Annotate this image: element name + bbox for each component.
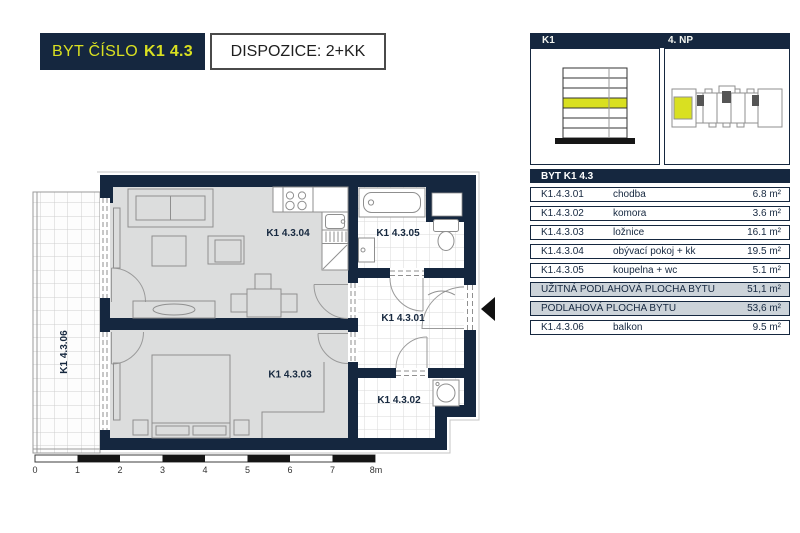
room-name: balkon bbox=[613, 322, 753, 333]
room-code: K1.4.3.01 bbox=[531, 189, 613, 200]
highlighted-unit bbox=[674, 97, 692, 119]
badge-prefix: BYT ČÍSLO bbox=[52, 43, 138, 61]
room-name: komora bbox=[613, 208, 753, 219]
floor-label: 4. NP bbox=[668, 35, 693, 46]
table-title: BYT K1 4.3 bbox=[541, 171, 593, 182]
scale-tick: 5 bbox=[245, 465, 250, 475]
scale-tick: 6 bbox=[287, 465, 292, 475]
building-elevation-cell bbox=[530, 48, 660, 165]
scale-tick: 4 bbox=[202, 465, 207, 475]
table-row: K1.4.3.05 koupelna + wc 5.1 m² bbox=[530, 263, 790, 278]
summary-area: 51,1 m² bbox=[747, 284, 789, 295]
room-code: K1.4.3.03 bbox=[531, 227, 613, 238]
shaft bbox=[432, 193, 462, 216]
room-label-storage: K1 4.3.02 bbox=[377, 395, 421, 406]
building-elevation-diagram bbox=[531, 49, 658, 163]
room-code: K1.4.3.02 bbox=[531, 208, 613, 219]
room-area: 3.6 m² bbox=[753, 208, 789, 219]
scale-bar: 0 1 2 3 4 5 6 7 8m bbox=[32, 455, 382, 475]
scale-tick: 2 bbox=[117, 465, 122, 475]
room-area: 9.5 m² bbox=[753, 322, 789, 333]
info-panel: K1 4. NP bbox=[530, 33, 790, 335]
floor-plan-minimap bbox=[665, 49, 788, 163]
layout-type-box: DISPOZICE: 2+KK bbox=[210, 33, 386, 70]
room-area: 19.5 m² bbox=[747, 246, 789, 257]
table-row: K1.4.3.04 obývací pokoj + kk 19.5 m² bbox=[530, 244, 790, 259]
room-label-hallway: K1 4.3.01 bbox=[381, 313, 425, 324]
entrance-arrow-icon bbox=[481, 297, 495, 321]
room-label-bathroom: K1 4.3.05 bbox=[376, 228, 420, 239]
scale-tick: 1 bbox=[75, 465, 80, 475]
room-area: 5.1 m² bbox=[753, 265, 789, 276]
summary-label: PODLAHOVÁ PLOCHA BYTU bbox=[531, 303, 747, 314]
floor-plan-minimap-cell bbox=[664, 48, 790, 165]
summary-row-floor-area: PODLAHOVÁ PLOCHA BYTU 53,6 m² bbox=[530, 301, 790, 316]
table-row: K1.4.3.03 ložnice 16.1 m² bbox=[530, 225, 790, 240]
scale-tick: 0 bbox=[32, 465, 37, 475]
room-label-living: K1 4.3.04 bbox=[266, 228, 310, 239]
table-title-bar: BYT K1 4.3 bbox=[530, 169, 790, 183]
highlighted-floor bbox=[563, 98, 627, 108]
summary-area: 53,6 m² bbox=[747, 303, 789, 314]
panel-header: K1 4. NP bbox=[530, 33, 790, 48]
summary-row-usable-area: UŽITNÁ PODLAHOVÁ PLOCHA BYTU 51,1 m² bbox=[530, 282, 790, 297]
table-row: K1.4.3.02 komora 3.6 m² bbox=[530, 206, 790, 221]
table-row: K1.4.3.01 chodba 6.8 m² bbox=[530, 187, 790, 202]
scale-tick: 8m bbox=[370, 465, 383, 475]
badge-unit-number: K1 4.3 bbox=[144, 43, 193, 61]
summary-label: UŽITNÁ PODLAHOVÁ PLOCHA BYTU bbox=[531, 284, 747, 295]
room-code: K1.4.3.04 bbox=[531, 246, 613, 257]
room-name: chodba bbox=[613, 189, 753, 200]
room-name: ložnice bbox=[613, 227, 747, 238]
balcony bbox=[33, 192, 100, 453]
room-name: koupelna + wc bbox=[613, 265, 753, 276]
apartment-number-badge: BYT ČÍSLO K1 4.3 bbox=[40, 33, 205, 70]
room-area: 6.8 m² bbox=[753, 189, 789, 200]
table-row-balcony: K1.4.3.06 balkon 9.5 m² bbox=[530, 320, 790, 335]
room-name: obývací pokoj + kk bbox=[613, 246, 747, 257]
layout-type-label: DISPOZICE: 2+KK bbox=[231, 43, 366, 61]
bedroom-floor bbox=[110, 330, 348, 438]
room-area: 16.1 m² bbox=[747, 227, 789, 238]
building-label: K1 bbox=[542, 35, 555, 46]
room-code: K1.4.3.05 bbox=[531, 265, 613, 276]
room-label-balcony: K1 4.3.06 bbox=[59, 330, 70, 374]
room-label-bedroom: K1 4.3.03 bbox=[268, 370, 312, 381]
scale-tick: 7 bbox=[330, 465, 335, 475]
room-code: K1.4.3.06 bbox=[531, 322, 613, 333]
scale-tick: 3 bbox=[160, 465, 165, 475]
